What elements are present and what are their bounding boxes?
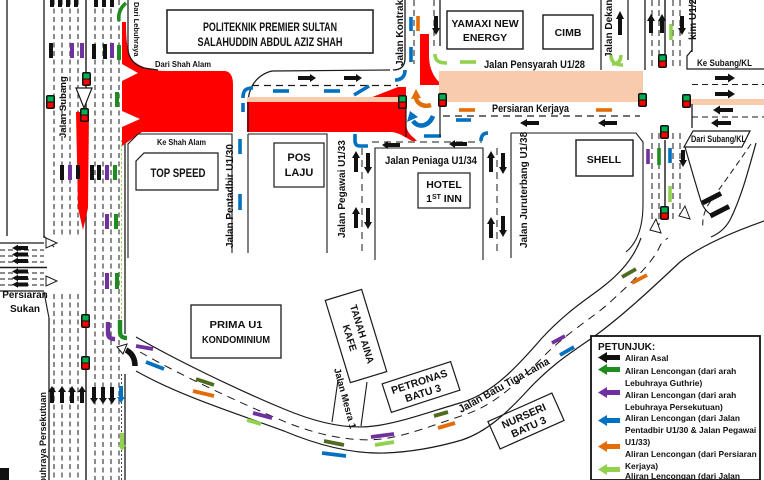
svg-text:SALAHUDDIN ABDUL AZIZ SHAH: SALAHUDDIN ABDUL AZIZ SHAH — [198, 37, 343, 49]
svg-text:Pentadbir U1/30 & Jalan Pegawa: Pentadbir U1/30 & Jalan Pegawai — [625, 425, 756, 435]
svg-text:Jalan Peniaga U1/34: Jalan Peniaga U1/34 — [385, 155, 478, 167]
svg-text:Dari Lebuhraya: Dari Lebuhraya — [132, 2, 141, 57]
svg-text:Lebuhraya Guthrie): Lebuhraya Guthrie) — [625, 378, 702, 388]
svg-text:PETUNJUK:: PETUNJUK: — [598, 342, 655, 353]
svg-text:Jalan Pensyarah U1/28: Jalan Pensyarah U1/28 — [484, 59, 585, 71]
svg-text:Aliran Lencongan (dari Persiar: Aliran Lencongan (dari Persiaran — [625, 449, 757, 459]
svg-text:CIMB: CIMB — [555, 27, 582, 39]
svg-text:Jalan Dekan U1: Jalan Dekan U1 — [604, 0, 615, 58]
svg-text:KONDOMINIUM: KONDOMINIUM — [202, 334, 270, 346]
svg-text:Sukan: Sukan — [10, 304, 40, 315]
svg-text:Lebuhraya Persekutuan: Lebuhraya Persekutuan — [38, 392, 48, 480]
svg-text:HOTEL: HOTEL — [426, 179, 462, 191]
svg-text:Jalan Pegawai U1/33: Jalan Pegawai U1/33 — [337, 140, 348, 238]
svg-text:kim U1/24: kim U1/24 — [688, 0, 699, 40]
svg-text:Jalan Subang: Jalan Subang — [58, 76, 69, 138]
svg-text:Ke Shah Alam: Ke Shah Alam — [157, 137, 206, 147]
svg-text:Persiaran: Persiaran — [2, 290, 48, 301]
svg-text:Dari Shah Alam: Dari Shah Alam — [155, 59, 211, 69]
svg-text:TOP SPEED: TOP SPEED — [151, 166, 206, 180]
svg-text:Ke Subang/KL: Ke Subang/KL — [697, 58, 752, 68]
svg-text:POLITEKNIK PREMIER SULTAN: POLITEKNIK PREMIER SULTAN — [203, 22, 337, 34]
svg-text:YAMAXI NEW: YAMAXI NEW — [451, 18, 518, 30]
svg-text:PRIMA U1: PRIMA U1 — [210, 319, 263, 331]
svg-text:Aliran Lencongan (dari arah: Aliran Lencongan (dari arah — [625, 366, 736, 376]
svg-text:Persiaran Kerjaya: Persiaran Kerjaya — [492, 103, 570, 115]
svg-text:Aliran Asal: Aliran Asal — [625, 353, 668, 363]
svg-text:Lebuhraya Persekutuan): Lebuhraya Persekutuan) — [625, 402, 723, 412]
svg-text:POS: POS — [287, 152, 310, 164]
svg-text:Aliran Lencongan (dari Jalan: Aliran Lencongan (dari Jalan — [625, 413, 740, 423]
svg-text:Dari Subang/KL: Dari Subang/KL — [691, 134, 746, 144]
svg-text:Aliran Lencongan (dari arah: Aliran Lencongan (dari arah — [625, 390, 736, 400]
svg-text:SHELL: SHELL — [587, 154, 622, 166]
svg-text:U1/33): U1/33) — [625, 437, 650, 447]
svg-text:LAJU: LAJU — [285, 167, 314, 179]
svg-text:Jalan Pentadbir U1/30: Jalan Pentadbir U1/30 — [225, 144, 236, 248]
svg-text:Aliran Lencongan (dari Jalan: Aliran Lencongan (dari Jalan — [625, 471, 740, 480]
svg-text:ENERGY: ENERGY — [463, 32, 507, 44]
svg-text:Kerjaya): Kerjaya) — [625, 461, 658, 471]
svg-text:1ST INN: 1ST INN — [426, 193, 462, 205]
svg-text:Jalan Juruterbang U1/38: Jalan Juruterbang U1/38 — [519, 131, 530, 248]
